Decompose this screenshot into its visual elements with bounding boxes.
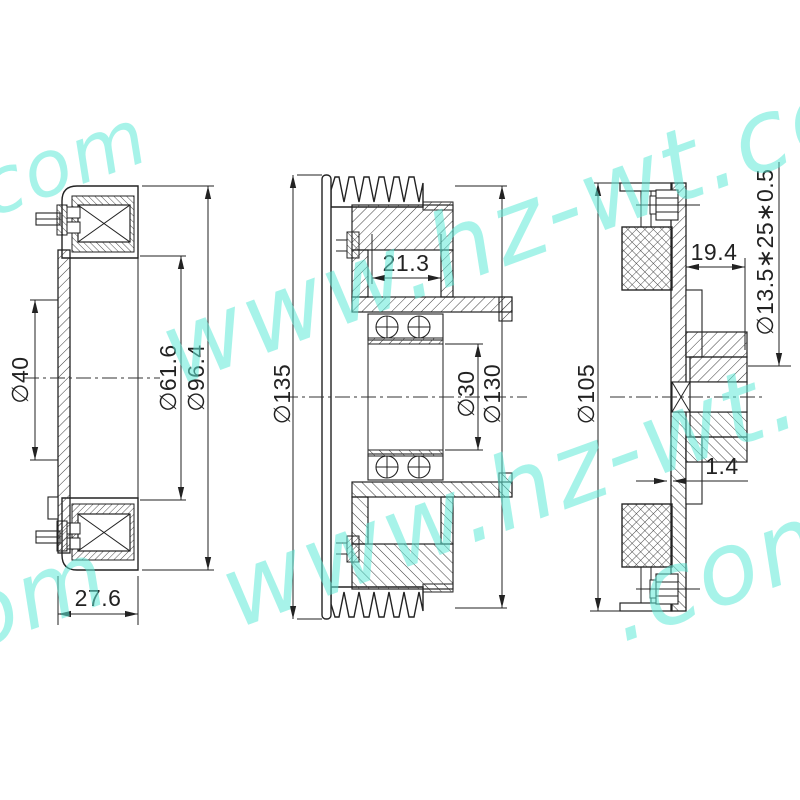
dimension-27-6: 27.6 (58, 576, 138, 625)
coil-section-view: ∅40 ∅61.6 ∅96.4 27.6 (7, 186, 214, 625)
dim-label-hub-outer: ∅105 (573, 364, 599, 424)
dim-label-pulley-outer: ∅135 (269, 364, 295, 424)
pulley-rim (352, 205, 453, 250)
mounting-flange (58, 250, 70, 553)
dim-label-hub-gap: 1.4 (705, 453, 738, 479)
dim-label-coil-od: ∅61.6 (155, 344, 181, 411)
dim-label-pulley-bore: ∅30 (453, 370, 479, 417)
pulley-section-view: 21.3 ∅135 ∅130 ∅30 (269, 175, 527, 619)
rubber-damper (622, 227, 672, 290)
drawing-canvas: ∅40 ∅61.6 ∅96.4 27.6 (0, 0, 800, 800)
dimension-spline: ∅13.5∗25∗0.5 (748, 162, 791, 366)
technical-drawing: ∅40 ∅61.6 ∅96.4 27.6 (0, 0, 800, 800)
dimension-phi61-6: ∅61.6 (140, 256, 186, 500)
dim-label-hub-spline: ∅13.5∗25∗0.5 (752, 169, 778, 336)
hub-nose-wall (690, 357, 747, 382)
bearing-flange (352, 297, 512, 312)
dim-label-hub-width: 21.3 (383, 250, 430, 276)
dim-label-coil-outer: ∅96.4 (183, 344, 209, 411)
dim-label-hub-depth: 19.4 (691, 239, 738, 265)
belt-grooves (331, 177, 423, 207)
dimension-phi40: ∅40 (7, 300, 58, 460)
stop-pin (636, 190, 700, 220)
hub-section-view: ∅105 19.4 ∅13.5∗25∗0.5 1.4 (573, 162, 791, 611)
dim-label-pulley-rim: ∅130 (479, 364, 505, 424)
bearing (368, 314, 443, 344)
flange-tab (48, 497, 58, 519)
dim-label-coil-bore: ∅40 (7, 356, 33, 403)
dim-label-coil-width: 27.6 (75, 585, 122, 611)
